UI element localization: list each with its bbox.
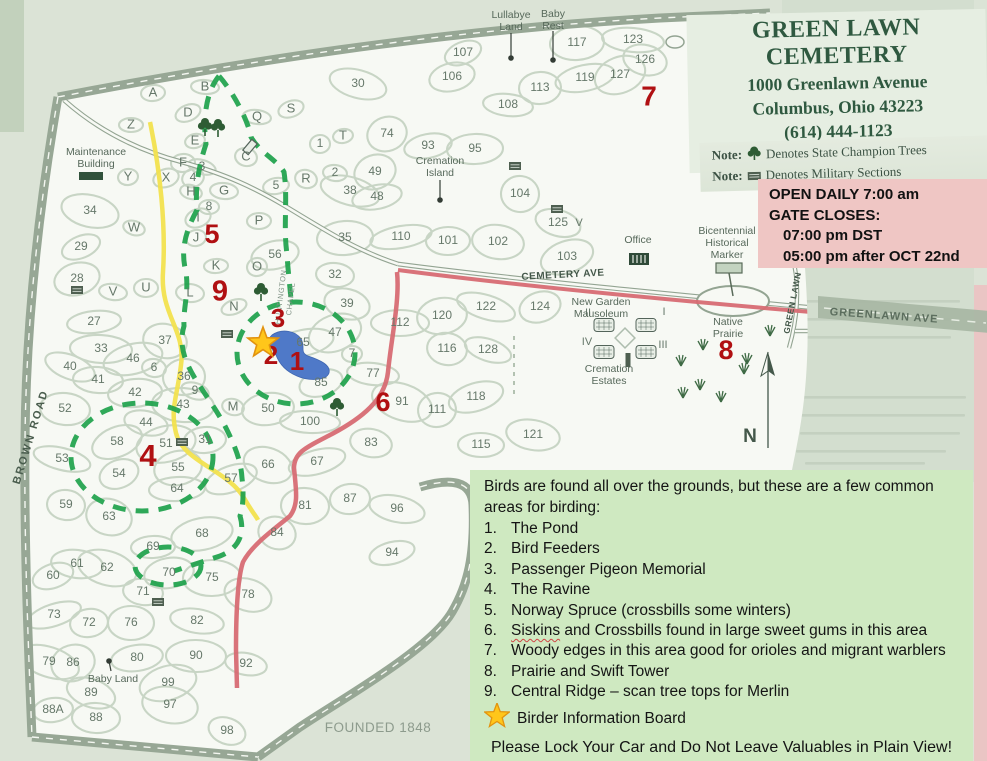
section-label: 8 (206, 199, 213, 213)
section-label: 79 (42, 654, 56, 668)
section-letter: A (149, 84, 158, 99)
birding-list-item: 5.Norway Spruce (crossbills some winters… (484, 601, 969, 621)
office-building-icon (629, 253, 649, 265)
section-letter: X (162, 169, 171, 184)
section-letter: P (255, 212, 264, 227)
military-section-icon (509, 162, 521, 170)
header-city: Columbus, Ohio 43223 (688, 94, 987, 121)
section-label: 47 (328, 325, 342, 339)
military-section-icon (176, 438, 188, 446)
section-roman: V (575, 217, 583, 229)
section-label: 127 (610, 67, 630, 81)
section-label: 94 (385, 545, 399, 559)
section-letter: I (196, 209, 200, 224)
section-label: 82 (190, 613, 204, 627)
section-label: 7 (349, 346, 356, 360)
section-label: 32 (328, 267, 342, 281)
scan-edge-strip (0, 0, 24, 132)
section-label: 87 (343, 491, 357, 505)
section-label: 123 (623, 32, 643, 46)
birding-area-marker: 9 (212, 276, 228, 308)
section-label: 34 (83, 203, 97, 217)
place-label: Native (713, 316, 743, 328)
section-label: 73 (47, 607, 61, 621)
section-label: 57 (224, 471, 238, 485)
section-label: 120 (432, 308, 452, 322)
section-label: 50 (261, 401, 275, 415)
section-label: 52 (58, 401, 72, 415)
section-label: 29 (74, 239, 88, 253)
birding-intro: Birds are found all over the grounds, bu… (484, 477, 969, 518)
section-label: 108 (498, 97, 518, 111)
section-letter: U (141, 279, 150, 294)
section-label: 48 (370, 189, 384, 203)
section-label: 55 (171, 460, 185, 474)
section-label: 41 (91, 372, 105, 386)
section-label: 92 (239, 656, 253, 670)
section-label: 85 (314, 375, 328, 389)
place-label: Bicentennial (698, 225, 755, 237)
section-label: 88 (89, 710, 103, 724)
section-label: 66 (261, 457, 275, 471)
military-section-icon (551, 205, 563, 213)
section-label: 36 (177, 369, 191, 383)
scan-pink-strip (974, 285, 987, 761)
section-label: 63 (102, 509, 116, 523)
section-label: 91 (395, 394, 409, 408)
section-letter: E (191, 132, 200, 147)
hours-info-box: OPEN DAILY 7:00 am GATE CLOSES: 07:00 pm… (758, 179, 987, 268)
place-label: Building (77, 158, 115, 170)
birding-list-item: 3.Passenger Pigeon Memorial (484, 560, 969, 580)
section-label: 119 (575, 70, 594, 84)
section-label: 125 (548, 215, 568, 229)
section-label: 40 (63, 359, 77, 373)
section-label: 68 (195, 526, 209, 540)
section-letter: D (183, 104, 192, 119)
note-label: Note: (712, 168, 743, 184)
section-label: 89 (84, 685, 98, 699)
section-letter: K (212, 257, 221, 272)
birding-list-item: 6.Siskins and Crossbills found in large … (484, 621, 969, 641)
section-roman: IV (582, 336, 593, 348)
section-label: 5 (273, 178, 280, 192)
section-letter: B (201, 78, 210, 93)
page-title: GREEN LAWN CEMETERY (686, 13, 986, 73)
section-letter: F (179, 154, 187, 169)
section-label: 86 (66, 655, 80, 669)
section-letter: Q (252, 108, 262, 123)
section-label: 30 (351, 76, 365, 90)
section-letter: W (128, 219, 141, 234)
section-label: 88A (42, 702, 63, 716)
birding-area-marker: 5 (204, 219, 219, 249)
section-label: 112 (390, 315, 409, 329)
section-label: 100 (300, 414, 320, 428)
place-label: Lullabye (491, 9, 530, 21)
section-label: 110 (391, 229, 410, 243)
section-label: 56 (268, 247, 282, 261)
birder-board-star-icon (484, 703, 510, 729)
section-label: 93 (421, 138, 435, 152)
section-label: 115 (471, 437, 490, 451)
section-label: 76 (124, 615, 138, 629)
section-letter: O (252, 258, 262, 273)
section-label: 78 (241, 587, 255, 601)
hours-line: 07:00 pm DST (769, 226, 987, 247)
section-roman: III (658, 339, 667, 351)
section-label: 51 (159, 436, 173, 450)
section-label: 118 (466, 389, 485, 403)
section-label: 102 (488, 234, 508, 248)
place-label: New Garden (572, 296, 631, 308)
section-label: 75 (205, 570, 219, 584)
birding-area-marker: 4 (139, 438, 157, 473)
birder-board-row: Birder Information Board (484, 703, 969, 730)
section-label: 4 (190, 170, 197, 184)
birding-list-item: 1.The Pond (484, 519, 969, 539)
section-label: 27 (87, 314, 101, 328)
compass-n-label: N (743, 426, 757, 447)
place-label: Island (426, 167, 454, 179)
section-label: 99 (161, 675, 175, 689)
section-label: 64 (170, 481, 184, 495)
birder-board-label: Birder Information Board (517, 710, 686, 727)
hours-line: GATE CLOSES: (769, 206, 987, 227)
birding-list-item: 7.Woody edges in this area good for orio… (484, 641, 969, 661)
section-label: 42 (128, 385, 142, 399)
section-label: 83 (364, 435, 378, 449)
section-label: 43 (176, 397, 190, 411)
section-letter: Z (127, 116, 135, 131)
section-label: 35 (338, 230, 352, 244)
section-label: 107 (453, 45, 473, 59)
section-label: 74 (380, 126, 394, 140)
birding-list-item: 4.The Ravine (484, 580, 969, 600)
section-letter: L (186, 284, 193, 299)
section-label: 126 (635, 52, 655, 66)
place-label: Estates (591, 375, 626, 387)
section-label: 103 (557, 249, 577, 263)
section-label: 106 (442, 69, 462, 83)
place-label: Land (499, 21, 523, 33)
note-label: Note: (712, 147, 743, 163)
section-label: 39 (340, 296, 354, 310)
place-label: Office (624, 234, 651, 246)
section-label: 72 (82, 615, 96, 629)
birding-list-item: 8.Prairie and Swift Tower (484, 662, 969, 682)
section-label: 53 (55, 451, 69, 465)
place-label: Baby (541, 8, 566, 20)
section-label: 90 (189, 648, 203, 662)
place-label: Mausoleum (574, 308, 629, 320)
section-label: 71 (136, 584, 150, 598)
section-label: 49 (368, 164, 382, 178)
place-label: Cremation (585, 363, 634, 375)
section-label: 54 (112, 466, 126, 480)
military-section-icon (221, 330, 233, 338)
champion-tree-icon (747, 145, 763, 165)
section-label: 98 (220, 723, 234, 737)
birding-area-marker: 1 (290, 346, 304, 376)
birding-area-marker: 3 (271, 303, 285, 333)
section-label: 113 (530, 80, 549, 94)
section-label: 60 (46, 568, 60, 582)
birding-area-marker: 7 (641, 80, 657, 111)
warning-text: Please Lock Your Car and Do Not Leave Va… (484, 739, 969, 757)
section-label: 111 (428, 402, 447, 416)
section-label: 67 (310, 454, 324, 468)
section-letter: N (229, 298, 238, 313)
section-label: 101 (438, 233, 458, 247)
hours-line: 05:00 pm after OCT 22nd (769, 247, 987, 268)
section-label: 62 (100, 560, 114, 574)
section-label: 121 (523, 427, 543, 441)
birding-area-marker: 6 (375, 387, 390, 417)
section-label: 122 (476, 299, 496, 313)
section-label: 9 (192, 383, 199, 397)
section-letter: S (287, 100, 296, 115)
section-label: 37 (158, 333, 172, 347)
section-letter: M (228, 398, 239, 413)
section-label: 1 (317, 136, 324, 150)
maintenance-building-icon (79, 172, 103, 180)
section-label: 77 (366, 366, 380, 380)
section-letter: J (193, 229, 200, 244)
section-label: 33 (94, 341, 108, 355)
section-label: 70 (162, 565, 176, 579)
section-label: 61 (70, 556, 84, 570)
section-label: 31 (198, 432, 212, 446)
section-letter: C (241, 148, 250, 163)
hours-line: OPEN DAILY 7:00 am (769, 185, 987, 206)
place-label: Baby Land (88, 673, 138, 685)
birding-list-item: 9.Central Ridge – scan tree tops for Mer… (484, 682, 969, 702)
section-label: 38 (343, 183, 357, 197)
section-label: 2 (332, 165, 339, 179)
section-letter: H (186, 183, 195, 198)
section-label: 6 (151, 360, 158, 374)
place-label: Rest (542, 20, 564, 32)
place-label: Marker (711, 249, 744, 261)
place-label: Cremation (416, 155, 465, 167)
section-label: 104 (510, 186, 530, 200)
section-label: 97 (163, 697, 177, 711)
section-label: 95 (468, 141, 482, 155)
place-label: Maintenance (66, 146, 126, 158)
founded-label: FOUNDED 1848 (308, 720, 448, 735)
section-label: 84 (270, 525, 284, 539)
section-label: 3 (199, 159, 206, 173)
header-address: 1000 Greenlawn Avenue (688, 70, 987, 97)
section-label: 80 (130, 650, 144, 664)
section-label: 28 (70, 271, 84, 285)
section-roman: I (662, 306, 665, 318)
military-section-icon (71, 286, 83, 294)
place-label: Historical (705, 237, 748, 249)
section-label: 117 (567, 35, 586, 49)
section-label: 116 (437, 341, 456, 355)
birding-area-marker: 8 (718, 335, 733, 365)
section-label: 46 (126, 351, 140, 365)
section-label: 128 (478, 342, 498, 356)
section-label: 44 (139, 415, 153, 429)
section-letter: G (219, 182, 229, 197)
section-letter: V (109, 283, 118, 298)
section-letter: Y (124, 168, 133, 183)
note-text: Denotes State Champion Trees (766, 142, 927, 161)
section-label: 124 (530, 299, 550, 313)
section-label: 69 (146, 539, 160, 553)
military-section-icon (152, 598, 164, 606)
section-letter: R (301, 170, 310, 185)
section-label: 58 (110, 434, 124, 448)
birding-info-box: Birds are found all over the grounds, bu… (470, 470, 973, 761)
section-label: 96 (390, 501, 404, 515)
section-letter: T (339, 127, 347, 142)
birding-list-item: 2.Bird Feeders (484, 539, 969, 559)
section-label: 59 (59, 497, 73, 511)
birding-list: 1.The Pond2.Bird Feeders3.Passenger Pige… (484, 519, 969, 703)
section-label: 81 (298, 498, 312, 512)
